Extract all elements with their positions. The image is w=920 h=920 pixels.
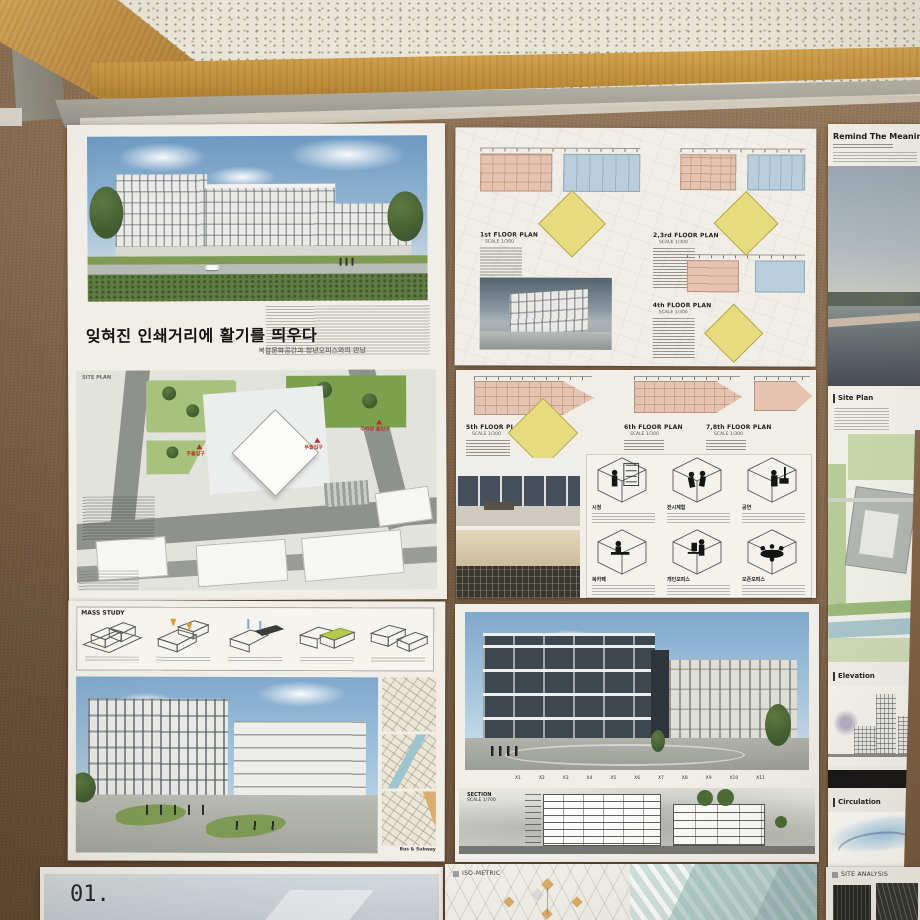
entrance-label-sub: 부출입구 bbox=[304, 444, 322, 451]
grid-label: X8 bbox=[682, 776, 688, 781]
plaza-road-curve bbox=[505, 744, 745, 766]
road-line bbox=[828, 498, 920, 502]
car bbox=[206, 265, 219, 270]
left-building bbox=[88, 699, 228, 797]
tree-line bbox=[828, 292, 920, 306]
grid-label-row: X1 X2 X3 X4 X5 X6 X7 X8 X9 X10 X11 bbox=[515, 776, 765, 781]
waterfront-edge bbox=[828, 313, 920, 327]
green-area bbox=[848, 434, 920, 480]
program-caption bbox=[667, 585, 730, 595]
tree bbox=[387, 191, 423, 241]
plan-scale: SCALE 1/300 bbox=[485, 239, 514, 244]
mass-diagram-1 bbox=[81, 617, 143, 663]
grid-label: X11 bbox=[756, 776, 765, 781]
site-plan-map: SITE PLAN 주출입구 부출입구 주차장 출입구 bbox=[76, 369, 437, 591]
park-tree bbox=[166, 446, 178, 458]
floor-plan-6f bbox=[634, 381, 742, 413]
map-thumbnail-1 bbox=[382, 677, 436, 731]
river-band bbox=[828, 618, 920, 639]
plan-scale: SCALE 1/300 bbox=[472, 432, 501, 437]
cloud bbox=[207, 166, 277, 188]
courtyard-render bbox=[76, 677, 378, 854]
program-label: 전시체험 bbox=[667, 504, 736, 511]
program-caption bbox=[742, 585, 805, 595]
grid-label: X10 bbox=[729, 776, 738, 781]
program-caption bbox=[592, 513, 655, 523]
floor-plan-4f-left bbox=[687, 260, 739, 292]
axon-site-map bbox=[630, 864, 817, 920]
floor-plan-1f-right bbox=[563, 154, 640, 192]
dimension-ticks bbox=[687, 254, 805, 258]
section-scale: SCALE 1/700 bbox=[467, 798, 496, 803]
dimension-ticks bbox=[474, 376, 592, 380]
building-render bbox=[87, 135, 428, 301]
entrance-marker bbox=[314, 438, 320, 443]
building-photo bbox=[480, 277, 612, 349]
plan-diamond bbox=[714, 191, 779, 256]
grid-label: X3 bbox=[563, 776, 569, 781]
program-label: 오픈오피스 bbox=[742, 576, 811, 583]
cover-number: 01. bbox=[70, 882, 110, 907]
map-thumbnail-2 bbox=[382, 734, 436, 788]
plan-label: 1st FLOOR PLAN bbox=[480, 231, 538, 238]
right-building bbox=[234, 721, 366, 797]
axon-diagram bbox=[445, 864, 645, 920]
elevation-building bbox=[876, 694, 896, 754]
photo-ceiling bbox=[456, 458, 580, 478]
map-caption: Bus & Subway bbox=[382, 847, 436, 852]
plan-legend-lines bbox=[624, 440, 664, 452]
poster-subtitle: 복합문화공간과 청년오피스와의 만남 bbox=[188, 346, 366, 357]
poster-title: 잊혀진 인쇄거리에 활기를 띄우다 bbox=[86, 321, 386, 346]
footer-note-lines bbox=[79, 571, 139, 591]
program-label: 북카페 bbox=[592, 576, 661, 583]
axon-cube bbox=[503, 896, 514, 907]
program-cube-viewing: 시청 bbox=[586, 454, 661, 526]
photo-window-band bbox=[456, 476, 580, 506]
plan-legend-lines bbox=[653, 318, 695, 358]
floor-plan-4f-right bbox=[755, 260, 805, 292]
top-margin bbox=[40, 867, 443, 874]
map-strip: Bus & Subway bbox=[382, 677, 436, 853]
mass-diagram-5 bbox=[367, 617, 429, 663]
green-area bbox=[828, 464, 846, 604]
elevation-building bbox=[854, 726, 876, 754]
section-building-right bbox=[673, 804, 765, 846]
program-label: 시청 bbox=[592, 504, 661, 511]
site-analysis-label: SITE ANALYSIS bbox=[841, 871, 888, 878]
mass-study-box: MASS STUDY bbox=[76, 607, 434, 672]
grid-label: X2 bbox=[539, 776, 545, 781]
level-ticks bbox=[525, 794, 541, 844]
dimension-ticks bbox=[634, 376, 740, 380]
map-annotation-lines bbox=[83, 496, 155, 540]
entrance-label-main: 주출입구 bbox=[186, 450, 204, 457]
cloud bbox=[287, 137, 407, 172]
plan-diamond bbox=[704, 304, 763, 363]
cloud bbox=[117, 142, 207, 172]
remind-site-plan-heading: Site Plan bbox=[833, 394, 873, 403]
plan-label: 6th FLOOR PLAN bbox=[624, 424, 683, 431]
program-label: 공연 bbox=[742, 504, 811, 511]
photo-of-poster-wall: 잊혀진 인쇄거리에 활기를 띄우다 복합문화공간과 청년오피스와의 만남 SIT… bbox=[0, 0, 920, 920]
program-cube-private-office: 개인오피스 bbox=[661, 526, 736, 598]
entrance-marker bbox=[376, 419, 382, 424]
remind-circulation-heading: Circulation bbox=[833, 798, 881, 807]
city-block bbox=[195, 539, 288, 588]
cloud bbox=[256, 681, 346, 707]
parking-lot bbox=[324, 480, 370, 507]
dimension-ticks bbox=[480, 147, 640, 152]
floor-plan-78f bbox=[754, 381, 812, 411]
analysis-photo bbox=[876, 883, 918, 920]
analysis-photo bbox=[833, 885, 871, 920]
plan-legend-lines bbox=[706, 440, 746, 452]
tree bbox=[697, 790, 713, 806]
site-court bbox=[859, 510, 899, 558]
tree bbox=[765, 704, 791, 746]
poster-01: 01. bbox=[40, 867, 443, 920]
floor-plan-23f-right bbox=[747, 154, 805, 190]
plan-label: 2,3rd FLOOR PLAN bbox=[653, 232, 719, 239]
mass-study-label: MASS STUDY bbox=[81, 610, 124, 617]
entrance-label-parking: 주차장 출입구 bbox=[360, 425, 389, 432]
cover-background: 01. bbox=[44, 874, 439, 920]
glass-building bbox=[483, 636, 655, 744]
cover-shape bbox=[254, 890, 374, 920]
remind-hero-render bbox=[828, 166, 920, 386]
entrance-marker bbox=[196, 444, 202, 449]
grid-label: X5 bbox=[610, 776, 616, 781]
section-panel: SECTION SCALE 1/700 bbox=[459, 788, 815, 854]
grid-label: X1 bbox=[515, 776, 521, 781]
paper-scrap bbox=[0, 108, 22, 126]
main-render bbox=[465, 612, 809, 770]
people-dots bbox=[491, 746, 521, 756]
program-caption bbox=[592, 585, 655, 595]
dimension-ticks bbox=[754, 376, 810, 380]
site-plan-notes bbox=[834, 408, 889, 430]
mass-diagram-2 bbox=[153, 617, 215, 663]
floor-plan-1f-left bbox=[480, 153, 552, 191]
plan-scale: SCALE 1/300 bbox=[714, 432, 743, 437]
grid-label: X9 bbox=[706, 776, 712, 781]
green-area bbox=[828, 638, 920, 662]
tree bbox=[775, 816, 787, 828]
tree bbox=[717, 789, 734, 806]
tree bbox=[651, 730, 665, 752]
park-tree bbox=[362, 393, 377, 408]
photo-ground bbox=[480, 331, 612, 349]
plan-scale: SCALE 1/300 bbox=[659, 240, 688, 245]
elevation-ground bbox=[828, 754, 920, 757]
mass-diagram-3 bbox=[224, 617, 286, 663]
program-label: 개인오피스 bbox=[667, 576, 736, 583]
remind-site-plan-map bbox=[828, 434, 920, 662]
plan-label: 7,8th FLOOR PLAN bbox=[706, 424, 772, 431]
remind-elevation-heading: Elevation bbox=[833, 672, 875, 681]
photo-warm-interior bbox=[456, 530, 580, 566]
park-tree bbox=[162, 386, 176, 400]
elevation-drawing bbox=[828, 686, 920, 766]
poster-floor-plans-high: 5th FLOOR PLAN SCALE 1/300 6th FLOOR PLA… bbox=[456, 370, 816, 598]
plan-label: 4th FLOOR PLAN bbox=[653, 302, 712, 309]
plan-scale: SCALE 1/300 bbox=[659, 310, 688, 315]
map-thumbnail-3 bbox=[382, 791, 436, 845]
dimension-ticks bbox=[680, 148, 805, 152]
remind-subtitle-lines bbox=[833, 144, 893, 149]
poster-mass-render: MASS STUDY bbox=[68, 601, 446, 862]
poster-isometric: ISO-METRIC bbox=[445, 864, 817, 920]
poster-floor-plans-low: 1st FLOOR PLAN SCALE 1/300 2,3rd FLOOR P… bbox=[455, 127, 817, 366]
remind-intro-lines bbox=[833, 152, 917, 162]
site-plan-label: SITE PLAN bbox=[82, 375, 111, 381]
program-cube-experience: 전시체험 bbox=[661, 454, 736, 526]
grid-label: X7 bbox=[658, 776, 664, 781]
remind-title: Remind The Meaning of bbox=[833, 132, 920, 141]
interior-photo-top bbox=[456, 458, 580, 526]
pedestrians bbox=[340, 258, 354, 266]
people-dots bbox=[146, 805, 206, 815]
park-tree bbox=[186, 404, 199, 417]
section-building-left bbox=[543, 794, 661, 846]
grid-label: X4 bbox=[586, 776, 592, 781]
ground-line bbox=[459, 846, 815, 854]
interior-photo-bottom bbox=[456, 530, 580, 598]
plan-diamond bbox=[538, 190, 606, 258]
city-block bbox=[301, 529, 405, 582]
program-caption bbox=[742, 513, 805, 523]
floor-plan-23f-left bbox=[680, 154, 736, 190]
shrub-band bbox=[88, 273, 428, 301]
mass-diagram-4 bbox=[296, 617, 358, 663]
photo-building bbox=[510, 289, 588, 336]
axon-guide-line bbox=[547, 888, 548, 914]
tree bbox=[89, 187, 123, 239]
program-cube-bookcafe: 북카페 bbox=[586, 526, 661, 598]
plan-scale: SCALE 1/300 bbox=[630, 432, 659, 437]
poster-print-street: 잊혀진 인쇄거리에 활기를 띄우다 복합문화공간과 청년오피스와의 만남 SIT… bbox=[67, 123, 447, 601]
axon-cube bbox=[571, 896, 582, 907]
grid-label: X6 bbox=[634, 776, 640, 781]
poster-remind: Remind The Meaning of Site Plan Elevatio… bbox=[828, 124, 920, 870]
poster-main-render: X1 X2 X3 X4 X5 X6 X7 X8 X9 X10 X11 SECTI… bbox=[455, 604, 819, 862]
square-bullet-icon bbox=[832, 872, 838, 878]
people-dots bbox=[236, 821, 276, 830]
program-caption bbox=[667, 513, 730, 523]
photo-table bbox=[484, 502, 514, 510]
program-cube-open-office: 오픈오피스 bbox=[736, 526, 811, 598]
program-cube-performance: 공연 bbox=[736, 454, 811, 526]
photo-floor bbox=[456, 506, 580, 526]
poster-site-analysis: SITE ANALYSIS bbox=[826, 867, 920, 920]
program-grid: 시청 전시체험 공연 bbox=[586, 454, 812, 598]
photo-dark-facade bbox=[456, 566, 580, 598]
